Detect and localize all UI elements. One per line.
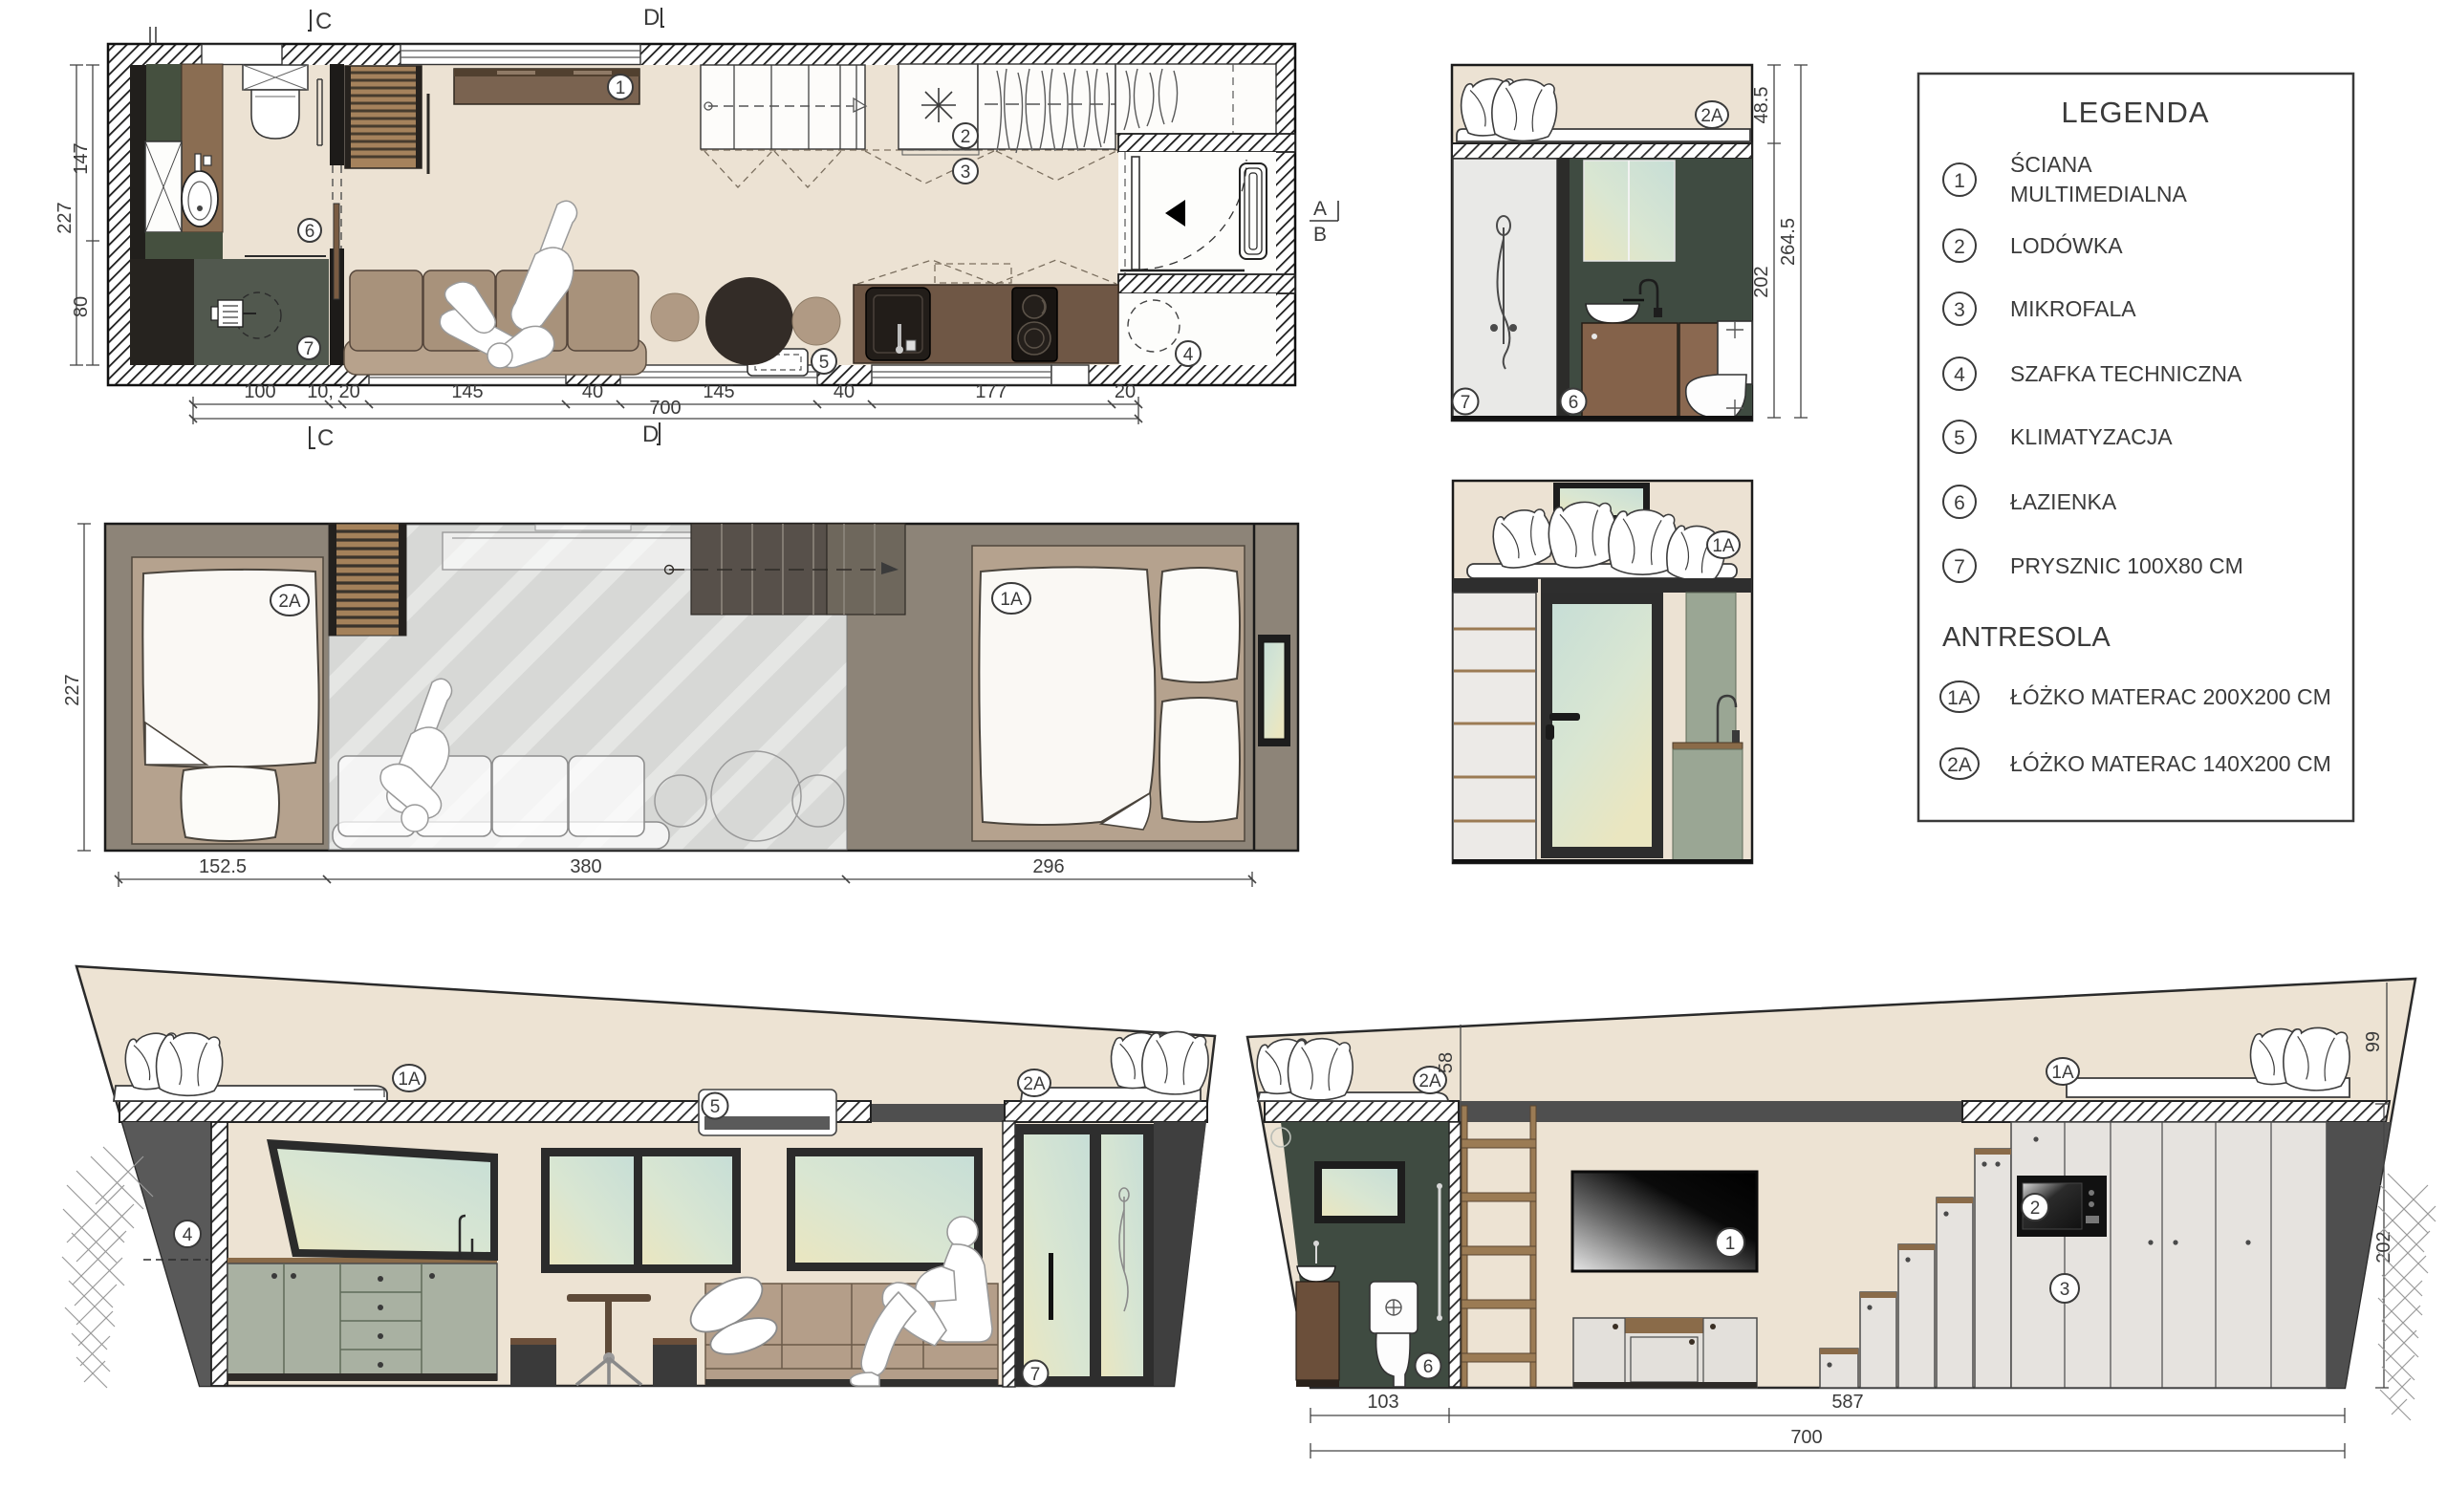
svg-text:58: 58 — [1436, 1052, 1457, 1073]
svg-text:5: 5 — [819, 353, 830, 373]
svg-text:MIKROFALA: MIKROFALA — [2010, 296, 2136, 321]
svg-text:ŚCIANA: ŚCIANA — [2010, 151, 2092, 177]
svg-text:4: 4 — [1954, 364, 1965, 386]
svg-text:700: 700 — [649, 398, 681, 419]
svg-text:48.5: 48.5 — [1751, 87, 1772, 124]
svg-text:5: 5 — [1954, 427, 1965, 449]
svg-text:1A: 1A — [1712, 536, 1735, 556]
svg-text:ŁÓŻKO MATERAC 200X200 CM: ŁÓŻKO MATERAC 200X200 CM — [2010, 684, 2331, 709]
svg-text:1A: 1A — [398, 1069, 421, 1090]
svg-text:ŁAZIENKA: ŁAZIENKA — [2010, 489, 2117, 514]
svg-text:B: B — [1313, 224, 1327, 246]
svg-text:6: 6 — [1569, 393, 1579, 413]
svg-text:1: 1 — [616, 78, 626, 98]
svg-text:40: 40 — [834, 381, 855, 402]
svg-text:A: A — [1313, 198, 1327, 220]
svg-text:2: 2 — [1954, 236, 1965, 258]
svg-text:1: 1 — [1954, 170, 1965, 192]
svg-text:7: 7 — [1954, 556, 1965, 578]
svg-text:2: 2 — [961, 127, 971, 147]
svg-text:100: 100 — [244, 381, 275, 402]
svg-text:10, 20: 10, 20 — [307, 381, 360, 402]
svg-text:MULTIMEDIALNA: MULTIMEDIALNA — [2010, 182, 2188, 206]
svg-text:103: 103 — [1367, 1392, 1398, 1413]
svg-text:202: 202 — [1751, 266, 1772, 297]
svg-text:3: 3 — [2060, 1280, 2070, 1300]
svg-text:145: 145 — [451, 381, 483, 402]
svg-text:4: 4 — [1183, 345, 1194, 365]
svg-text:1A: 1A — [1947, 687, 1972, 709]
svg-text:700: 700 — [1790, 1427, 1822, 1448]
svg-text:587: 587 — [1831, 1392, 1863, 1413]
svg-text:ANTRESOLA: ANTRESOLA — [1942, 622, 2111, 653]
svg-text:145: 145 — [703, 381, 734, 402]
svg-text:2A: 2A — [278, 592, 301, 612]
svg-text:99: 99 — [2363, 1031, 2384, 1052]
svg-text:7: 7 — [1461, 393, 1471, 413]
svg-text:KLIMATYZACJA: KLIMATYZACJA — [2010, 424, 2173, 449]
svg-text:PRYSZNIC 100X80 CM: PRYSZNIC 100X80 CM — [2010, 553, 2243, 578]
svg-text:20: 20 — [1115, 381, 1136, 402]
svg-text:80: 80 — [71, 296, 92, 317]
svg-text:D: D — [643, 5, 660, 31]
svg-text:7: 7 — [1030, 1365, 1041, 1385]
svg-text:3: 3 — [1954, 299, 1965, 321]
svg-text:4: 4 — [183, 1225, 193, 1245]
svg-text:152.5: 152.5 — [199, 856, 247, 877]
svg-text:2A: 2A — [1947, 754, 1972, 776]
svg-text:2A: 2A — [1700, 106, 1723, 126]
svg-text:1A: 1A — [2051, 1063, 2074, 1083]
svg-text:5: 5 — [710, 1097, 721, 1117]
svg-text:147: 147 — [71, 142, 92, 174]
svg-text:2: 2 — [2030, 1199, 2041, 1219]
svg-text:3: 3 — [961, 162, 971, 183]
svg-text:ŁÓŻKO MATERAC 140X200 CM: ŁÓŻKO MATERAC 140X200 CM — [2010, 751, 2331, 776]
svg-text:2A: 2A — [1023, 1074, 1046, 1094]
svg-text:227: 227 — [62, 674, 83, 705]
svg-text:6: 6 — [1423, 1357, 1434, 1377]
svg-text:6: 6 — [305, 222, 315, 242]
svg-text:LODÓWKA: LODÓWKA — [2010, 233, 2123, 258]
svg-text:C: C — [317, 425, 334, 451]
svg-text:40: 40 — [582, 381, 603, 402]
svg-text:D: D — [642, 421, 659, 447]
svg-text:C: C — [315, 9, 332, 34]
svg-text:7: 7 — [304, 339, 314, 359]
svg-text:LEGENDA: LEGENDA — [2061, 96, 2209, 129]
svg-text:2A: 2A — [1418, 1071, 1441, 1091]
svg-text:6: 6 — [1954, 492, 1965, 514]
svg-text:264.5: 264.5 — [1778, 218, 1799, 266]
svg-text:1: 1 — [1725, 1234, 1736, 1254]
svg-text:SZAFKA TECHNICZNA: SZAFKA TECHNICZNA — [2010, 361, 2242, 386]
svg-text:1A: 1A — [1000, 590, 1023, 610]
svg-text:296: 296 — [1032, 856, 1064, 877]
svg-text:227: 227 — [54, 202, 76, 233]
svg-text:380: 380 — [570, 856, 601, 877]
svg-text:177: 177 — [975, 381, 1007, 402]
